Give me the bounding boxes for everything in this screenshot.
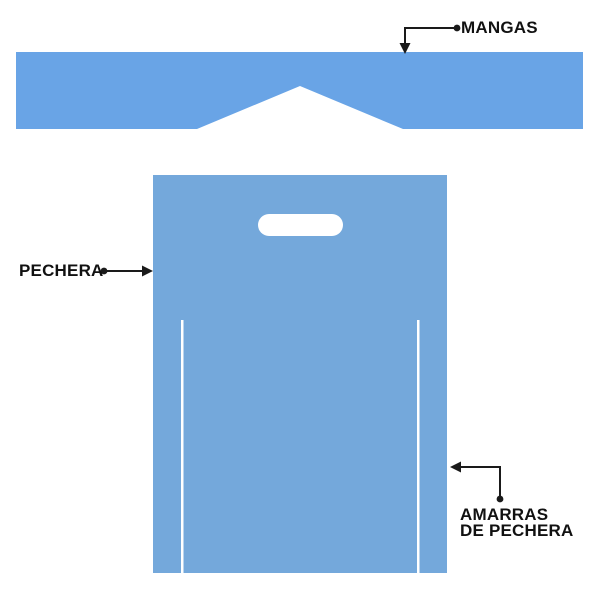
amarras-connector <box>450 462 503 503</box>
connector-dot <box>497 496 504 503</box>
connector-line <box>459 467 500 499</box>
amarras-de-pechera-label: AMARRAS DE PECHERA <box>460 507 573 538</box>
pechera-connector <box>101 266 153 277</box>
strap-line-left <box>181 320 184 573</box>
handle-slot-cutout <box>258 214 343 236</box>
arrow-left-icon <box>450 462 461 473</box>
apron-parts-diagram: MANGAS PECHERA AMARRAS DE PECHERA <box>0 0 600 600</box>
sleeves-shape <box>16 52 583 129</box>
mangas-label: MANGAS <box>461 19 538 36</box>
amarras-label-line2: DE PECHERA <box>460 523 573 539</box>
connector-dot <box>454 25 461 32</box>
strap-line-right <box>417 320 420 573</box>
connector-line <box>405 28 457 45</box>
mangas-connector <box>400 25 461 54</box>
arrow-right-icon <box>142 266 153 277</box>
pechera-label: PECHERA <box>19 262 104 279</box>
